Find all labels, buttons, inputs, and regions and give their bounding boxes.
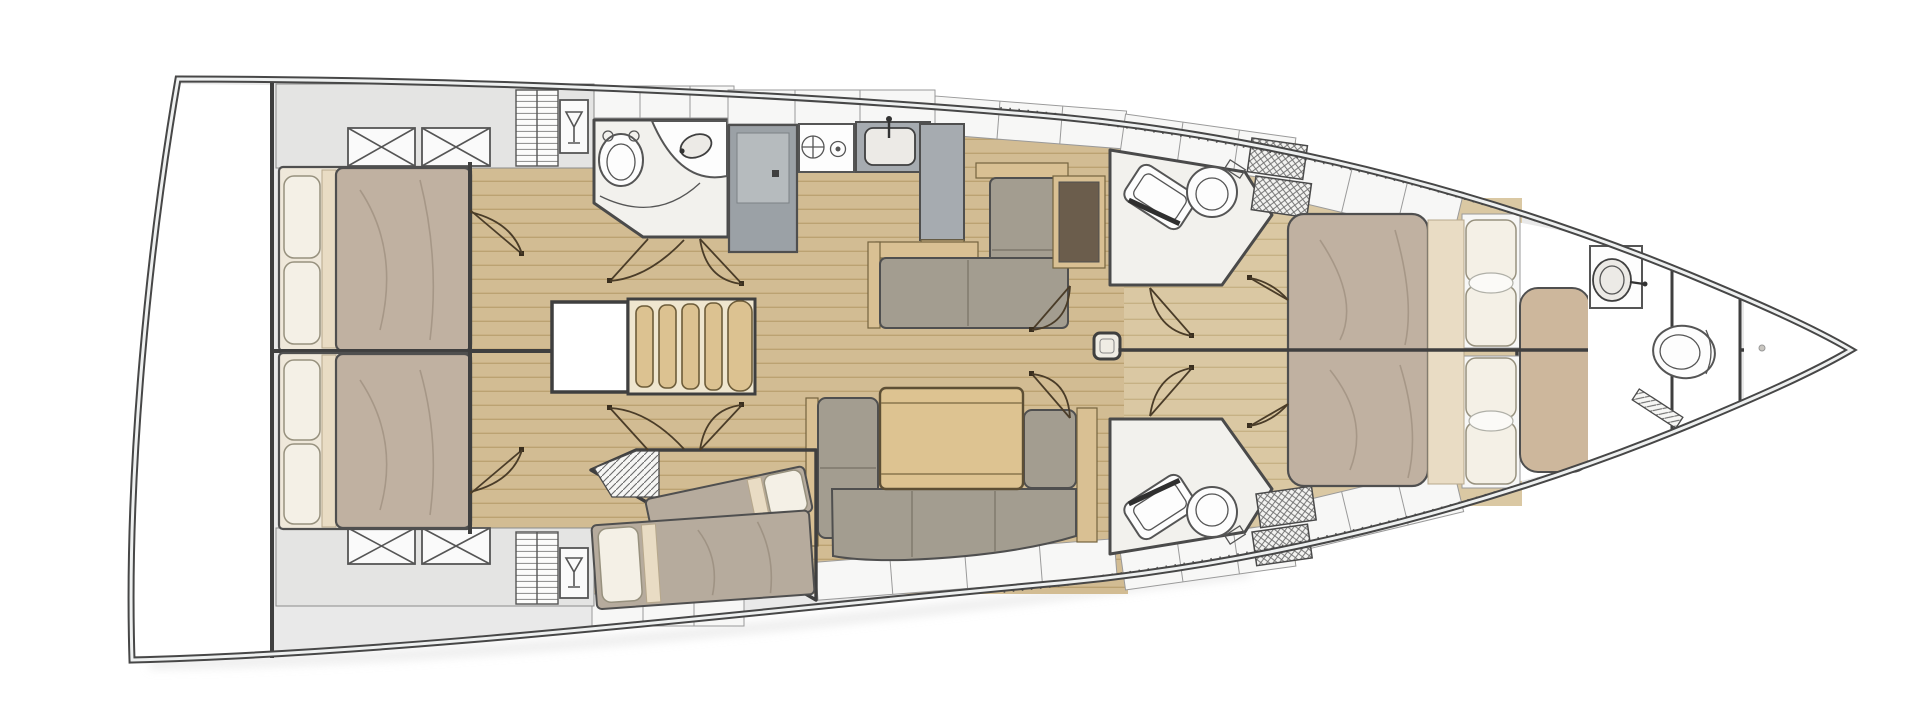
galley-counter-column xyxy=(920,124,964,240)
dinette-right-cushion xyxy=(1024,410,1076,488)
bed-blanket xyxy=(336,168,471,351)
side-cabinet xyxy=(1053,176,1105,268)
hanging-locker-icon xyxy=(560,100,588,153)
fridge xyxy=(729,125,797,252)
dinette xyxy=(806,388,1097,560)
shelf-locker xyxy=(516,90,558,166)
anchor-fitting xyxy=(1759,345,1765,351)
companionway xyxy=(552,299,755,394)
wardrobe-x-door xyxy=(348,528,415,564)
pillow xyxy=(1466,358,1516,418)
sofa-back-trim xyxy=(876,242,978,258)
galley-sink xyxy=(856,116,930,172)
l-sofa-horizontal-arm xyxy=(880,258,1068,328)
yacht-floorplan xyxy=(0,0,1920,704)
stair-tread xyxy=(659,305,676,388)
fridge-handle xyxy=(772,170,779,177)
pillow xyxy=(284,176,320,258)
wardrobe-x-door xyxy=(348,128,415,166)
sofa-end-trim xyxy=(868,242,880,328)
dinette-end-trim xyxy=(1077,408,1097,542)
bed-blanket xyxy=(336,354,471,528)
wardrobe-x-door xyxy=(422,528,490,564)
landing-hatch xyxy=(552,302,628,392)
stair-tread xyxy=(636,306,653,387)
sheet-fold xyxy=(322,355,336,527)
bench-seat xyxy=(1520,288,1590,472)
shelf-locker xyxy=(516,532,558,604)
stair-tread xyxy=(705,303,722,390)
wardrobe-x-door xyxy=(422,128,490,166)
pillow xyxy=(284,360,320,440)
lower-berth xyxy=(591,510,814,609)
stove xyxy=(799,124,854,172)
pillow xyxy=(1466,286,1516,346)
hanging-locker-icon xyxy=(560,548,588,598)
pillow-roll xyxy=(1469,273,1513,293)
bow-head xyxy=(1588,236,1845,464)
dining-table xyxy=(880,388,1023,489)
sheet-band xyxy=(1428,220,1464,484)
mast-post xyxy=(1094,333,1120,359)
stair-tread xyxy=(682,304,699,389)
sheet-fold xyxy=(322,170,336,348)
faucet xyxy=(679,148,684,153)
stern-platform xyxy=(133,84,270,656)
yacht-floorplan-canvas xyxy=(0,0,1920,704)
stair-bottom-tread xyxy=(728,301,752,391)
pillow-roll xyxy=(1469,411,1513,431)
pillow xyxy=(284,262,320,344)
pillow xyxy=(284,444,320,524)
